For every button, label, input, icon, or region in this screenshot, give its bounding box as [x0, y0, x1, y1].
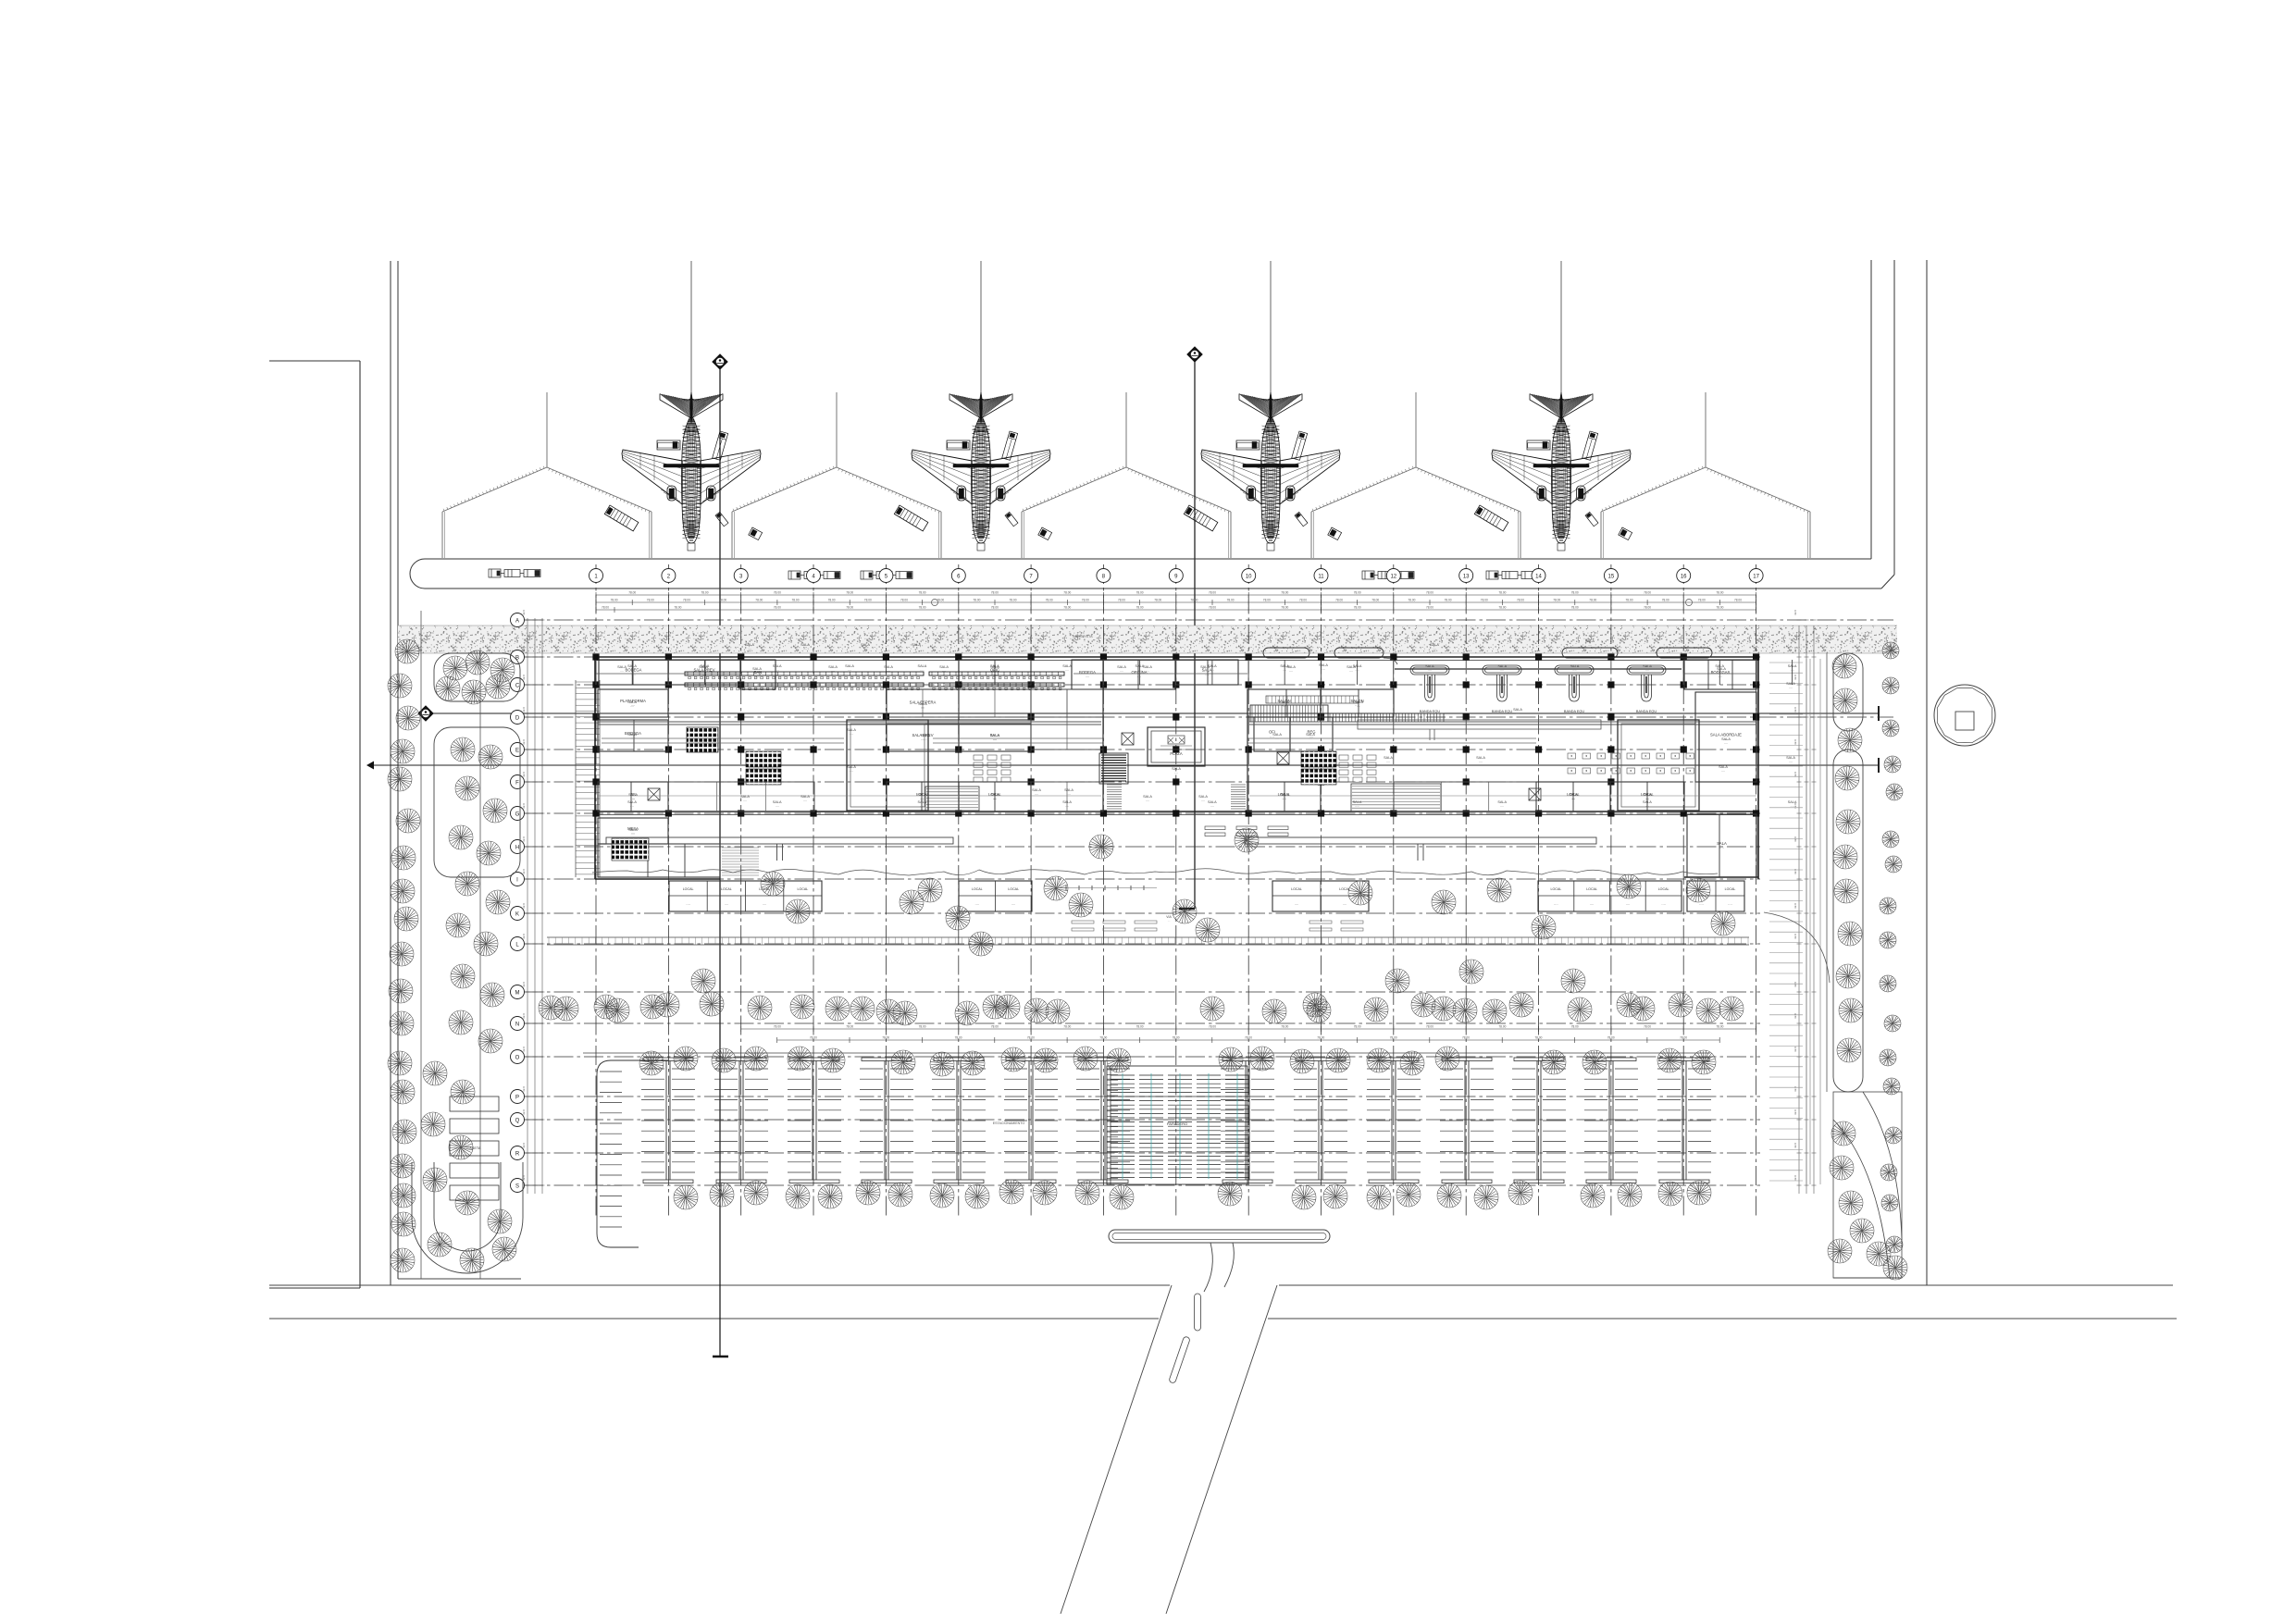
svg-text:SALA: SALA — [1172, 767, 1181, 771]
svg-text:····: ···· — [1386, 761, 1390, 764]
svg-text:78.00: 78.00 — [1426, 591, 1433, 595]
svg-text:SALA: SALA — [1497, 664, 1507, 668]
svg-text:78.00: 78.00 — [1010, 599, 1017, 602]
svg-text:····: ···· — [1355, 805, 1359, 809]
svg-text:SALA: SALA — [861, 643, 870, 647]
svg-text:78.00: 78.00 — [1716, 591, 1723, 595]
svg-text:78.00: 78.00 — [1408, 599, 1415, 602]
svg-text:VIA: VIA — [1166, 915, 1172, 919]
svg-text:SALA: SALA — [740, 795, 750, 799]
svg-text:SALA: SALA — [1143, 795, 1152, 799]
svg-text:····: ···· — [1790, 805, 1793, 809]
svg-text:SALA: SALA — [1280, 664, 1289, 668]
svg-text:16: 16 — [1681, 575, 1687, 580]
svg-text:····: ···· — [702, 669, 706, 673]
svg-text:SALA: SALA — [939, 665, 949, 669]
svg-text:····: ···· — [920, 805, 924, 809]
svg-text:32.0: 32.0 — [1793, 647, 1797, 652]
svg-text:78.00: 78.00 — [1046, 599, 1053, 602]
svg-text:32.0: 32.0 — [522, 707, 526, 712]
svg-text:····: ···· — [1210, 805, 1214, 809]
svg-text:····: ···· — [1174, 772, 1178, 775]
svg-text:···: ··· — [1084, 639, 1086, 643]
svg-text:SALA: SALA — [847, 765, 856, 769]
svg-text:····: ···· — [1035, 793, 1038, 797]
svg-text:····: ···· — [630, 805, 634, 809]
svg-text:78.00: 78.00 — [1571, 606, 1579, 610]
svg-text:78.00: 78.00 — [1498, 1025, 1506, 1029]
svg-text:····: ···· — [1571, 798, 1575, 801]
svg-text:R: R — [515, 1152, 520, 1158]
svg-text:····: ···· — [1137, 675, 1142, 679]
svg-text:78.00: 78.00 — [1426, 1025, 1433, 1029]
svg-text:LOCAL: LOCAL — [1725, 887, 1736, 891]
svg-text:32.0: 32.0 — [1793, 1047, 1797, 1052]
svg-text:····: ···· — [1343, 903, 1347, 907]
svg-text:····: ···· — [1322, 668, 1325, 672]
svg-text:····: ···· — [1283, 705, 1286, 709]
svg-text:····: ···· — [620, 670, 624, 674]
svg-text:····: ···· — [1275, 737, 1279, 741]
svg-text:32.0: 32.0 — [522, 772, 526, 777]
svg-text:A: A — [515, 619, 519, 625]
svg-text:····: ···· — [1500, 805, 1504, 809]
svg-text:SALA: SALA — [1569, 793, 1578, 797]
svg-text:17: 17 — [1753, 575, 1759, 580]
svg-text:LOCAL: LOCAL — [1586, 887, 1597, 891]
svg-text:SALA: SALA — [628, 793, 638, 797]
svg-text:····: ···· — [1588, 644, 1592, 648]
svg-text:78.00: 78.00 — [1644, 1025, 1651, 1029]
svg-text:····: ···· — [1724, 742, 1728, 746]
svg-text:SALA: SALA — [752, 667, 762, 671]
svg-text:····: ···· — [803, 799, 807, 803]
svg-text:S: S — [515, 1184, 519, 1190]
svg-text:····: ···· — [1065, 669, 1069, 673]
svg-text:LOCAL: LOCAL — [683, 887, 694, 891]
svg-text:····: ···· — [863, 648, 867, 651]
svg-text:32.0: 32.0 — [1793, 869, 1797, 874]
svg-text:32.0: 32.0 — [522, 1109, 526, 1115]
svg-text:····: ···· — [1699, 903, 1704, 907]
svg-text:78.00: 78.00 — [1136, 591, 1144, 595]
svg-text:78.00: 78.00 — [1227, 599, 1235, 602]
svg-text:SALA: SALA — [1117, 665, 1126, 669]
svg-text:····: ···· — [1721, 770, 1725, 774]
svg-text:32.0: 32.0 — [522, 1143, 526, 1148]
svg-text:78.00: 78.00 — [1644, 606, 1651, 610]
svg-text:····: ···· — [755, 672, 759, 675]
svg-text:····: ···· — [1516, 712, 1520, 716]
svg-text:····: ···· — [1428, 669, 1432, 673]
svg-text:SALA: SALA — [745, 643, 754, 647]
svg-text:····: ···· — [1011, 903, 1016, 907]
svg-text:32.0: 32.0 — [522, 610, 526, 615]
svg-text:····: ···· — [756, 675, 761, 679]
svg-text:BANDA EQU: BANDA EQU — [1420, 710, 1440, 713]
svg-text:SALA: SALA — [1643, 664, 1652, 668]
svg-text:78.00: 78.00 — [919, 1025, 926, 1029]
svg-text:G: G — [515, 812, 520, 818]
svg-text:D: D — [515, 716, 520, 722]
svg-text:K: K — [515, 912, 519, 918]
svg-text:SALA: SALA — [1062, 800, 1072, 804]
svg-text:32.0: 32.0 — [1793, 1143, 1797, 1148]
svg-text:SALA: SALA — [1425, 664, 1434, 668]
svg-text:····: ···· — [1500, 669, 1504, 673]
svg-text:78.00: 78.00 — [846, 1025, 853, 1029]
svg-text:SALA: SALA — [847, 728, 856, 732]
svg-text:32.0: 32.0 — [522, 1013, 526, 1019]
svg-text:12: 12 — [1390, 575, 1396, 580]
svg-text:····: ···· — [850, 770, 853, 774]
svg-text:····: ···· — [1719, 675, 1723, 679]
svg-text:13: 13 — [1463, 575, 1470, 580]
svg-text:SALA: SALA — [918, 664, 927, 668]
svg-text:····: ···· — [1146, 670, 1149, 674]
svg-text:78.00: 78.00 — [919, 606, 926, 610]
svg-text:78.00: 78.00 — [900, 599, 908, 602]
svg-text:10: 10 — [1246, 575, 1252, 580]
svg-text:78.00: 78.00 — [919, 591, 926, 595]
svg-text:78.00: 78.00 — [991, 591, 999, 595]
svg-text:78.00: 78.00 — [1462, 1036, 1470, 1040]
svg-text:····: ···· — [748, 648, 751, 651]
svg-text:78.00: 78.00 — [1553, 599, 1560, 602]
svg-text:78.00: 78.00 — [1481, 599, 1488, 602]
svg-text:O: O — [515, 1056, 520, 1061]
svg-text:····: ···· — [803, 648, 807, 651]
svg-text:····: ···· — [763, 903, 767, 907]
svg-text:····: ···· — [686, 903, 690, 907]
svg-text:32.0: 32.0 — [1793, 739, 1797, 745]
svg-text:LOCAL: LOCAL — [798, 887, 809, 891]
svg-text:····: ···· — [743, 799, 747, 803]
svg-text:····: ···· — [1661, 903, 1666, 907]
svg-text:····: ···· — [993, 674, 998, 677]
svg-text:SALA: SALA — [1585, 639, 1595, 643]
svg-text:····: ···· — [630, 705, 634, 709]
svg-text:32.0: 32.0 — [522, 934, 526, 939]
svg-text:····: ···· — [1349, 670, 1353, 674]
svg-text:····: ···· — [921, 707, 925, 711]
svg-text:SALA: SALA — [1280, 793, 1289, 797]
svg-text:····: ···· — [1433, 648, 1436, 651]
svg-text:SALA: SALA — [1319, 663, 1328, 667]
svg-text:32.0: 32.0 — [1793, 982, 1797, 987]
svg-text:····: ···· — [1645, 805, 1649, 809]
svg-text:····: ···· — [1203, 670, 1207, 674]
svg-text:LOCAL: LOCAL — [972, 887, 983, 891]
svg-text:····: ···· — [831, 670, 835, 674]
svg-text:SALA: SALA — [1208, 800, 1217, 804]
svg-text:78.00: 78.00 — [1680, 1036, 1687, 1040]
svg-text:SALA: SALA — [990, 734, 999, 737]
svg-text:····: ···· — [1295, 903, 1299, 907]
svg-text:78.00: 78.00 — [674, 606, 681, 610]
svg-text:LOCAL: LOCAL — [1291, 887, 1302, 891]
svg-text:SALA: SALA — [1721, 737, 1731, 741]
svg-text:78.00: 78.00 — [1099, 1036, 1107, 1040]
svg-text:78.00: 78.00 — [1281, 1025, 1288, 1029]
svg-text:SALA: SALA — [1062, 664, 1072, 668]
svg-text:32.0: 32.0 — [522, 803, 526, 809]
svg-text:78.00: 78.00 — [1063, 591, 1071, 595]
svg-text:78.00: 78.00 — [683, 599, 690, 602]
svg-text:78.00: 78.00 — [1644, 591, 1651, 595]
svg-text:····: ···· — [1554, 903, 1558, 907]
svg-text:78.00: 78.00 — [973, 599, 980, 602]
svg-text:32.0: 32.0 — [522, 647, 526, 652]
svg-text:32.0: 32.0 — [1793, 610, 1797, 615]
svg-text:11: 11 — [1318, 575, 1324, 580]
svg-text:78.00: 78.00 — [991, 1025, 999, 1029]
svg-text:78.00: 78.00 — [774, 1025, 781, 1029]
svg-text:32.0: 32.0 — [522, 982, 526, 987]
svg-text:LOCAL: LOCAL — [1658, 887, 1669, 891]
svg-text:78.00: 78.00 — [1281, 591, 1288, 595]
svg-text:78.00: 78.00 — [792, 599, 800, 602]
svg-text:14: 14 — [1535, 575, 1542, 580]
svg-text:SALA: SALA — [627, 800, 637, 804]
svg-text:SALA: SALA — [1064, 788, 1074, 792]
svg-text:32.0: 32.0 — [1793, 675, 1797, 680]
svg-text:32.0: 32.0 — [522, 903, 526, 909]
svg-text:78.00: 78.00 — [1317, 1036, 1324, 1040]
svg-text:····: ···· — [1790, 669, 1793, 673]
svg-text:E: E — [515, 749, 519, 754]
svg-text:····: ···· — [1283, 669, 1286, 673]
svg-text:78.00: 78.00 — [1498, 591, 1506, 595]
svg-text:····: ···· — [1789, 687, 1793, 690]
svg-text:····: ···· — [975, 903, 980, 907]
svg-text:····: ···· — [1479, 761, 1483, 764]
svg-text:SALA: SALA — [1717, 841, 1727, 846]
svg-text:78.00: 78.00 — [1571, 1025, 1579, 1029]
svg-text:SALA: SALA — [773, 800, 782, 804]
svg-text:78.00: 78.00 — [1118, 599, 1125, 602]
svg-text:SALA: SALA — [628, 828, 638, 832]
svg-text:78.00: 78.00 — [602, 606, 609, 610]
svg-text:32.0: 32.0 — [522, 1047, 526, 1052]
svg-text:SALA: SALA — [1643, 800, 1652, 804]
svg-text:78.00: 78.00 — [1209, 1025, 1216, 1029]
svg-text:····: ···· — [1718, 669, 1721, 673]
svg-text:····: ···· — [1719, 847, 1724, 850]
svg-text:BANDA EQU: BANDA EQU — [1564, 710, 1584, 713]
svg-text:78.00: 78.00 — [846, 591, 853, 595]
svg-text:···: ··· — [1168, 920, 1171, 923]
svg-text:SALA: SALA — [1032, 788, 1041, 792]
svg-text:SALA: SALA — [1143, 665, 1152, 669]
svg-text:32.0: 32.0 — [522, 836, 526, 842]
svg-text:····: ···· — [1289, 670, 1293, 674]
svg-text:78.00: 78.00 — [1354, 606, 1361, 610]
svg-text:SALA: SALA — [1497, 800, 1507, 804]
svg-text:SALA: SALA — [1786, 682, 1795, 686]
svg-text:C: C — [515, 684, 520, 689]
svg-text:78.00: 78.00 — [1063, 606, 1071, 610]
svg-text:SALA: SALA — [1570, 664, 1580, 668]
svg-text:····: ···· — [1789, 761, 1793, 764]
svg-text:78.00: 78.00 — [1734, 599, 1742, 602]
svg-text:AEROPISTA: AEROPISTA — [1073, 635, 1093, 638]
svg-text:SALA: SALA — [627, 700, 637, 704]
svg-text:78.00: 78.00 — [1173, 1036, 1180, 1040]
svg-text:32.0: 32.0 — [1793, 1109, 1797, 1115]
svg-text:32.0: 32.0 — [1793, 836, 1797, 842]
svg-text:F: F — [515, 781, 519, 787]
svg-text:····: ···· — [776, 805, 779, 809]
svg-text:78.00: 78.00 — [846, 606, 853, 610]
svg-text:SALA: SALA — [1354, 700, 1363, 704]
svg-text:78.00: 78.00 — [882, 1036, 889, 1040]
svg-text:SALA: SALA — [990, 793, 999, 797]
svg-text:SALA: SALA — [1430, 643, 1439, 647]
svg-text:SALA: SALA — [1788, 664, 1797, 668]
svg-text:BANDA EQU: BANDA EQU — [1492, 710, 1512, 713]
svg-text:SALA: SALA — [1719, 765, 1728, 769]
svg-text:SALA: SALA — [912, 643, 921, 647]
svg-text:SALA: SALA — [800, 643, 810, 647]
svg-text:SALA: SALA — [1788, 800, 1797, 804]
svg-text:SALA: SALA — [1198, 795, 1208, 799]
svg-text:····: ···· — [725, 903, 729, 907]
svg-text:78.00: 78.00 — [1571, 591, 1579, 595]
svg-text:78.00: 78.00 — [1209, 591, 1216, 595]
svg-text:LOCAL: LOCAL — [721, 887, 732, 891]
svg-text:····: ···· — [1137, 669, 1141, 673]
svg-text:78.00: 78.00 — [1263, 599, 1271, 602]
svg-text:ESTACIONAMIENTO: ESTACIONAMIENTO — [993, 1121, 1025, 1125]
svg-text:78.00: 78.00 — [1354, 591, 1361, 595]
svg-text:N: N — [515, 1022, 519, 1028]
svg-text:····: ···· — [993, 738, 997, 742]
svg-text:SALA: SALA — [1208, 664, 1217, 668]
svg-text:SALA: SALA — [990, 664, 999, 668]
svg-text:78.00: 78.00 — [774, 591, 781, 595]
svg-text:····: ···· — [1728, 903, 1732, 907]
svg-text:····: ···· — [1067, 793, 1071, 797]
svg-text:SALA: SALA — [1272, 733, 1282, 737]
svg-text:78.00: 78.00 — [1354, 1025, 1361, 1029]
svg-text:78.00: 78.00 — [1607, 1036, 1615, 1040]
svg-text:78.00: 78.00 — [991, 606, 999, 610]
svg-text:SALA: SALA — [1476, 756, 1485, 760]
svg-text:78.00: 78.00 — [611, 599, 618, 602]
svg-text:78.00: 78.00 — [1662, 599, 1669, 602]
svg-text:32.0: 32.0 — [1793, 934, 1797, 939]
svg-text:78.00: 78.00 — [1136, 1025, 1144, 1029]
svg-text:78.00: 78.00 — [1698, 599, 1706, 602]
svg-text:32.0: 32.0 — [1793, 1013, 1797, 1019]
svg-text:78.00: 78.00 — [1027, 1036, 1035, 1040]
svg-text:SALA: SALA — [1643, 793, 1652, 797]
svg-text:78.00: 78.00 — [1716, 1025, 1723, 1029]
svg-text:32.0: 32.0 — [1793, 1086, 1797, 1092]
svg-text:78.00: 78.00 — [1136, 606, 1144, 610]
svg-text:78.00: 78.00 — [647, 599, 654, 602]
svg-text:SALA: SALA — [1384, 756, 1393, 760]
svg-text:····: ···· — [1309, 737, 1312, 741]
svg-text:32.0: 32.0 — [1793, 903, 1797, 909]
svg-text:····: ···· — [914, 648, 918, 651]
svg-text:78.00: 78.00 — [628, 591, 636, 595]
svg-text:SALA: SALA — [1280, 700, 1289, 704]
svg-text:32.0: 32.0 — [522, 869, 526, 874]
svg-text:SALA: SALA — [828, 665, 838, 669]
svg-text:····: ···· — [1201, 799, 1205, 803]
svg-text:····: ···· — [1210, 669, 1214, 673]
svg-text:SALA: SALA — [1513, 708, 1522, 712]
svg-text:SALA: SALA — [884, 665, 893, 669]
svg-text:78.00: 78.00 — [1445, 599, 1452, 602]
svg-text:SALA: SALA — [701, 664, 710, 668]
svg-text:78.00: 78.00 — [1517, 599, 1524, 602]
svg-text:SALA: SALA — [845, 664, 854, 668]
svg-text:····: ···· — [1120, 670, 1123, 674]
svg-text:SALA: SALA — [921, 734, 930, 737]
svg-text:32.0: 32.0 — [522, 675, 526, 680]
svg-text:PLAZA: PLAZA — [1170, 751, 1182, 756]
svg-text:····: ···· — [848, 669, 851, 673]
svg-text:78.00: 78.00 — [1498, 606, 1506, 610]
svg-text:CASETA: CASETA — [467, 1146, 481, 1150]
svg-text:SALA: SALA — [1306, 733, 1315, 737]
svg-text:78.00: 78.00 — [828, 599, 836, 602]
svg-text:78.00: 78.00 — [1154, 599, 1161, 602]
svg-text:Q: Q — [515, 1119, 520, 1124]
svg-text:78.00: 78.00 — [1082, 599, 1089, 602]
svg-text:SALA: SALA — [617, 665, 627, 669]
svg-text:P: P — [515, 1096, 519, 1101]
svg-text:····: ···· — [850, 733, 853, 737]
svg-text:····: ···· — [1146, 799, 1149, 803]
svg-text:····: ···· — [887, 670, 890, 674]
svg-text:78.00: 78.00 — [1626, 599, 1633, 602]
svg-text:78.00: 78.00 — [864, 599, 872, 602]
svg-text:BANDA EQU: BANDA EQU — [1636, 710, 1657, 713]
svg-text:32.0: 32.0 — [522, 739, 526, 745]
svg-text:32.0: 32.0 — [1793, 707, 1797, 712]
svg-text:SALA: SALA — [627, 664, 637, 668]
svg-text:32.0: 32.0 — [1793, 1175, 1797, 1181]
svg-text:····: ···· — [776, 669, 779, 673]
svg-text:····: ···· — [630, 737, 634, 741]
svg-text:····: ···· — [1065, 805, 1069, 809]
svg-text:····: ···· — [1572, 669, 1576, 673]
svg-text:LOCAL: LOCAL — [1008, 887, 1019, 891]
svg-text:SALA: SALA — [1353, 800, 1362, 804]
svg-text:78.00: 78.00 — [1209, 606, 1216, 610]
svg-text:78.00: 78.00 — [755, 599, 763, 602]
svg-text:····: ···· — [993, 798, 997, 801]
svg-text:····: ···· — [920, 669, 924, 673]
svg-text:SALA: SALA — [800, 795, 810, 799]
svg-text:H: H — [515, 846, 519, 851]
svg-text:78.00: 78.00 — [955, 1036, 962, 1040]
svg-text:78.00: 78.00 — [1534, 1036, 1542, 1040]
svg-text:78.00: 78.00 — [1063, 1025, 1071, 1029]
svg-text:78.00: 78.00 — [1390, 1036, 1397, 1040]
svg-text:78.00: 78.00 — [719, 599, 726, 602]
svg-text:SALA: SALA — [917, 793, 926, 797]
svg-text:SALA ABORDAJE: SALA ABORDAJE — [1710, 733, 1742, 737]
svg-text:····: ···· — [924, 738, 927, 742]
svg-text:····: ···· — [1355, 669, 1359, 673]
svg-text:SALA: SALA — [918, 800, 927, 804]
svg-text:····: ···· — [630, 669, 634, 673]
